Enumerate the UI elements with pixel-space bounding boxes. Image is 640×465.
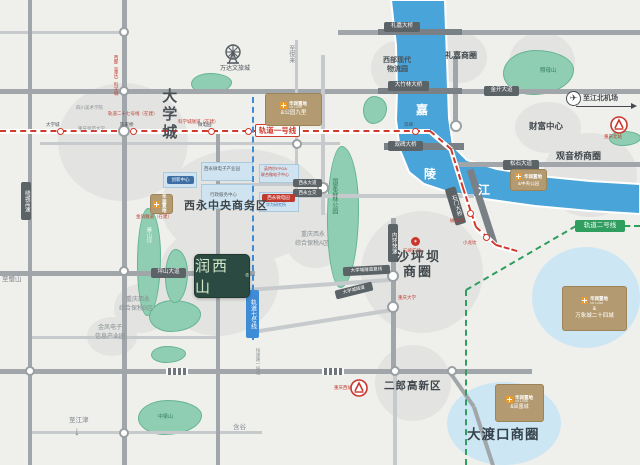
cr-land-logo: 华润置地CR LAND <box>581 297 608 305</box>
sanxia-square-poi-icon: ✶ <box>411 237 420 246</box>
project-name-text: &凤凰城 <box>510 404 528 410</box>
station-dot <box>130 128 137 135</box>
project-box-central-park: 华润置地&中央公园 <box>510 169 547 191</box>
bridge-label-shuangbei: 双碑大桥 <box>388 141 423 151</box>
brand-name-text: 润西山 <box>195 255 244 297</box>
dir-yuelai: 至悦来 <box>287 45 294 63</box>
label-sanxia-square: 三峡广场 <box>403 248 421 253</box>
cr-land-logo-subtext: CR LAND <box>515 400 533 403</box>
road-label-jinkai-avenue: 金开大道 <box>484 86 519 96</box>
label-scfai: 四川美术学院 <box>76 105 103 110</box>
train-station-icon-north <box>610 116 628 134</box>
label-zhaomushan: 照母山 <box>540 68 557 74</box>
road-v-center <box>216 131 220 465</box>
label-hangu: 含谷 <box>233 424 246 431</box>
station-label-chenjiaqiao: 陈家桥 <box>120 122 134 127</box>
road-h-bottom <box>30 431 262 434</box>
label-bonded-b-1: 重庆西永 <box>126 297 150 304</box>
note-line27: 轨道二十七号线（在建） <box>108 111 158 116</box>
cr-land-logo-text: 华润置地 <box>162 195 170 213</box>
road-label-xiyong-interchange: 西永立交 <box>293 189 322 197</box>
junction-dot <box>387 301 399 313</box>
label-shapingba-2: 商圈 <box>403 265 433 280</box>
junction-dot <box>25 366 35 376</box>
project-box-gongyuan-jiuli: 华润置地CR LAND&公园九里 <box>265 93 322 126</box>
label-bonded-a-1: 重庆西永 <box>301 232 325 239</box>
station-dot <box>483 234 490 241</box>
project-badge-small: 华润置地 <box>150 194 173 214</box>
label-zhaishanping: 寨山坪 <box>145 227 151 244</box>
train-station-icon-west <box>350 379 368 397</box>
label-guanyinqiao: 观音桥商圈 <box>556 151 601 161</box>
label-caifu-center: 财富中心 <box>529 122 563 132</box>
cr-land-logo-mark <box>581 297 588 304</box>
label-wanda: 万达文旅城 <box>220 66 250 73</box>
river-char-jiang: 江 <box>478 184 490 198</box>
station-label-daxuecheng: 大学城 <box>46 122 60 127</box>
road-h-songshi <box>455 162 640 167</box>
cr-land-logo-mark <box>506 396 513 403</box>
ferris-wheel-icon <box>221 42 245 66</box>
cr-land-logo: 华润置地CR LAND <box>506 396 533 404</box>
label-ciqikou: 磁器口 <box>450 218 464 223</box>
cr-land-logo-mark <box>153 201 160 208</box>
note-science-city: 西部（重庆）科学城 <box>114 55 119 96</box>
label-cqnu: 重庆师范大学 <box>78 126 105 131</box>
label-dadukou: 大渡口商圈 <box>467 427 540 443</box>
station-dot <box>245 128 252 135</box>
label-bonded-a-2: 综合保税A区 <box>295 241 329 248</box>
label-cqu: 重庆大学 <box>398 295 416 300</box>
station-dot <box>467 210 474 217</box>
cr-land-logo: 华润置地 <box>153 195 170 213</box>
bridge-label-lijia: 礼嘉大桥 <box>384 22 420 32</box>
junction-dot <box>119 27 129 37</box>
label-north-station: 重庆北站 <box>604 134 622 139</box>
jiangjin-arrow-icon: ↓ <box>74 425 80 439</box>
rail-line-1 <box>0 130 430 132</box>
label-west-logistics-1: 西部现代 <box>383 57 411 65</box>
project-name-text: 万象城二十四城 <box>575 313 614 320</box>
cbd-label-intel: 英特尔FPGA <box>264 167 287 172</box>
cr-land-logo-text: 华润置地 <box>524 175 542 180</box>
label-jinfeng-2: 信息产业园 <box>95 334 125 341</box>
cbd-label-innovation: 创新中心 <box>167 176 194 184</box>
label-expressway-1: 快速路一纵线 <box>256 348 261 375</box>
railway-hatch-icon <box>166 368 188 375</box>
junction-dot <box>447 366 457 376</box>
junction-dot <box>119 266 129 276</box>
label-jinfeng-1: 金凤电子 <box>98 325 122 332</box>
road-v-ring-west <box>28 0 32 465</box>
junction-dot <box>119 86 129 96</box>
label-west-logistics-2: 物流园 <box>387 66 408 74</box>
station-label-weidianyuan: 微电园 <box>198 122 212 127</box>
cr-land-logo-subtext: CR LAND <box>590 302 608 305</box>
label-zhongliangshan: 中梁山 <box>158 415 173 421</box>
road-label-xiyong-avenue: 西永大道 <box>293 179 322 187</box>
road-v-daxuecheng <box>122 0 127 465</box>
cr-land-logo-subtext: CR LAND <box>289 106 307 109</box>
label-xiaolongkan: 小龙坎 <box>463 240 477 245</box>
rail-label-line7: 轨道七号线 <box>246 290 259 338</box>
project-name-text: & <box>593 306 597 313</box>
label-forest-park: 国家森林公园 <box>330 178 337 214</box>
project-box-fenghuangcheng: 华润置地CR LAND&凤凰城 <box>495 384 544 422</box>
junction-dot <box>450 120 462 132</box>
airport-arrow-icon-head <box>631 103 637 109</box>
road-h-top-left <box>0 31 126 34</box>
label-xiyong-cbd: 西永中央商务区 <box>184 200 268 213</box>
river-char-jia: 嘉 <box>416 104 428 118</box>
cr-land-logo-mark <box>515 173 522 180</box>
project-box-mixc-24city: 华润置地CR LAND&万象城二十四城 <box>562 286 627 331</box>
cr-land-logo: 华润置地 <box>515 173 542 180</box>
label-lijia: 礼嘉商圈 <box>445 51 477 60</box>
junction-dot <box>390 366 400 376</box>
cbd-block-2 <box>201 162 253 181</box>
label-bonded-b-2: 综合保税B区 <box>119 306 153 313</box>
label-daxuecheng: 大学城 <box>160 88 177 142</box>
cbd-label-umec: 联合微电子中心 <box>261 173 289 178</box>
dir-airport: 至江北机场 <box>583 95 618 103</box>
cbd-label-admin: 行政服务中心 <box>210 192 237 197</box>
cr-land-logo-mark <box>280 102 287 109</box>
road-label-raocheng: 绕城高速 <box>21 182 31 220</box>
registered-mark: ® <box>245 273 249 279</box>
project-name-text: &中央公园 <box>518 181 539 186</box>
logo-runxishan: 润西山® <box>194 254 250 298</box>
cbd-label-huawei: 华为研究所 <box>266 203 286 208</box>
station-dot <box>412 128 419 135</box>
label-erlang: 二郎高新区 <box>384 380 442 392</box>
station-label-shuangbei: 双碑 <box>404 122 413 127</box>
plane-icon: ✈ <box>566 91 581 106</box>
road-label-pingshan-avenue: 坪山大道 <box>151 268 186 278</box>
junction-dot <box>119 428 129 438</box>
cr-land-logo: 华润置地CR LAND <box>280 102 307 110</box>
project-name-text: &公园九里 <box>281 110 307 117</box>
airport-arrow-icon <box>576 106 632 107</box>
rail-label-line2: 轨道二号线 <box>575 220 625 232</box>
dir-bishan: 至璧山 <box>2 276 22 283</box>
junction-dot <box>292 139 302 149</box>
station-dot <box>57 128 64 135</box>
station-dot <box>208 128 215 135</box>
railway-hatch-icon <box>322 368 344 375</box>
cbd-label-micro-park: 西永微电子产业园 <box>204 166 240 171</box>
note-jinfeng-tunnel: 金凤隧道（在建） <box>136 214 172 219</box>
chongqing-location-map: 坪山大道金开大道松石大道西永大道西永立交双碑大桥大竹林大桥礼嘉大桥大学城隧道复线… <box>0 0 640 465</box>
bridge-label-dazhulin: 大竹林大桥 <box>388 81 429 91</box>
river-char-ling: 陵 <box>424 168 436 182</box>
